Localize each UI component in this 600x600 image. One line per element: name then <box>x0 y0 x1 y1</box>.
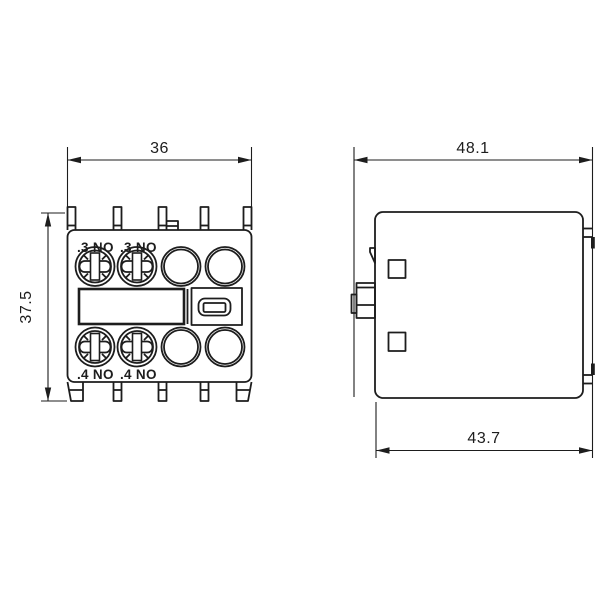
dim-arrow-right-icon <box>238 157 252 163</box>
front-view: 36 37.5 .3 NO .3 NO <box>18 140 252 401</box>
connector-tab <box>159 382 167 401</box>
dim-arrow-left-icon <box>376 447 390 453</box>
side-terminal-block <box>352 283 376 318</box>
front-lower-tabs <box>68 382 252 401</box>
recess-square <box>389 260 406 278</box>
dim-arrow-down-icon <box>45 388 51 402</box>
front-middle-section <box>79 288 242 325</box>
contact-opening <box>206 328 245 367</box>
dim-arrow-left-icon <box>68 157 82 163</box>
dimension-drawing: 36 37.5 .3 NO .3 NO <box>0 0 600 600</box>
dim-arrow-right-icon <box>579 157 593 163</box>
screw-terminal <box>118 328 157 367</box>
connector-tab <box>237 382 252 401</box>
dim-arrow-left-icon <box>354 157 368 163</box>
dim-arrow-up-icon <box>45 213 51 227</box>
tab-step <box>167 221 179 230</box>
front-width-dimension: 36 <box>68 140 252 207</box>
terminal-label: .4 NO <box>120 367 157 382</box>
side-width-dimension-bottom: 43.7 <box>376 402 593 458</box>
screw-terminal <box>118 247 157 286</box>
contact-opening <box>162 328 201 367</box>
screw-terminal <box>76 328 115 367</box>
connector-tab <box>114 207 122 230</box>
front-height-dimension: 37.5 <box>18 213 67 401</box>
side-body-outline <box>375 212 583 398</box>
contact-opening <box>206 247 245 286</box>
label-window <box>79 289 184 324</box>
contact-opening <box>162 247 201 286</box>
side-view: 48.1 <box>352 140 595 458</box>
connector-tab <box>68 382 84 401</box>
technical-drawing-page: 36 37.5 .3 NO .3 NO <box>0 0 600 600</box>
dim-arrow-right-icon <box>579 447 593 453</box>
connector-tab <box>159 207 167 230</box>
connector-tab <box>68 207 76 230</box>
front-height-value: 37.5 <box>18 290 35 323</box>
front-width-value: 36 <box>150 140 169 157</box>
side-width-bottom-value: 43.7 <box>467 430 500 447</box>
connector-tab <box>244 207 252 230</box>
side-width-top-value: 48.1 <box>456 140 489 157</box>
front-upper-tabs <box>68 207 252 230</box>
connector-tab <box>201 382 209 401</box>
screw-terminal <box>76 247 115 286</box>
mounting-clip <box>370 248 375 263</box>
front-bottom-terminal-row <box>76 328 245 367</box>
actuator-button-inner <box>204 303 226 312</box>
recess-square <box>389 333 406 352</box>
connector-tab <box>201 207 209 230</box>
side-width-dimension-top: 48.1 <box>354 140 593 458</box>
terminal-label: .4 NO <box>77 367 114 382</box>
connector-tab <box>114 382 122 401</box>
